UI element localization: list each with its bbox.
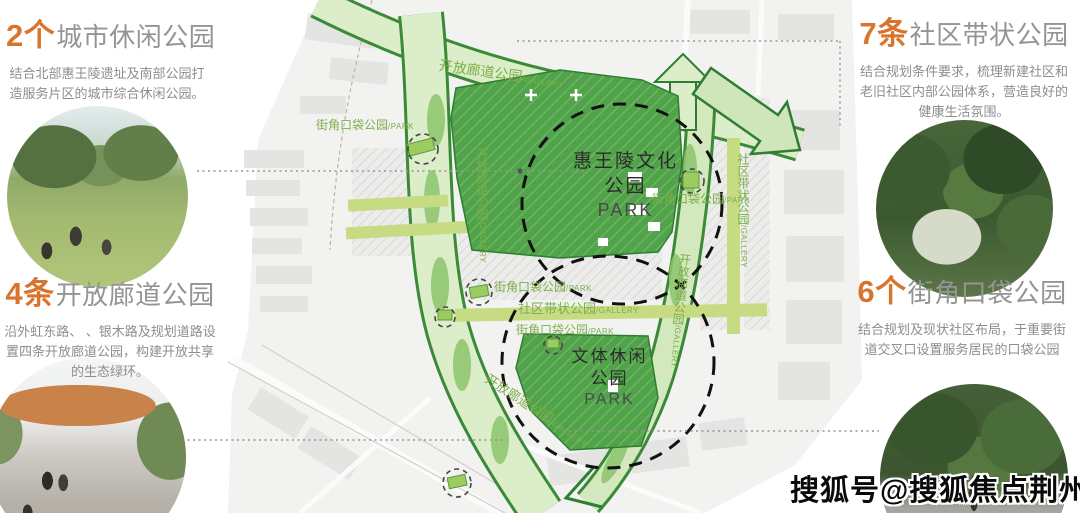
- panel-heading: 2个城市休闲公园: [6, 10, 208, 55]
- park-name-line: 惠王陵文化: [553, 150, 698, 175]
- panel-description: 结合规划及现状社区布局，于重要街道交叉口设置服务居民的口袋公园: [854, 320, 1070, 360]
- park-type-title: 街角口袋公园: [908, 278, 1067, 308]
- park-name-line: 公园: [547, 368, 672, 390]
- huiwangling-park-label: 惠王陵文化 公园 PARK: [553, 150, 698, 223]
- photo-city-leisure-park: [7, 106, 188, 287]
- label-text: 街角口袋公园: [516, 323, 588, 337]
- panel-city-leisure-parks: 2个城市休闲公园 结合北部惠王陵遗址及南部公园打造服务片区的城市综合休闲公园。: [6, 10, 208, 104]
- label-corridor-left: 开放廊道公园/GALLERY: [476, 148, 488, 263]
- park-name-en: PARK: [553, 199, 698, 222]
- park-count: 2个: [6, 18, 55, 53]
- label-text: 街角口袋公园: [316, 118, 388, 132]
- panel-heading: 7条社区带状公园: [858, 8, 1070, 53]
- label-text: 社区带状公园: [736, 153, 750, 225]
- label-text: 开放廊道公园: [475, 148, 489, 220]
- sohu-watermark: 搜狐号@搜狐焦点荆州站: [790, 467, 1080, 509]
- panel-description: 结合规划条件要求，梳理新建社区和老旧社区内部公园体系，营造良好的健康生活氛围。: [858, 62, 1070, 122]
- panel-description: 结合北部惠王陵遗址及南部公园打造服务片区的城市综合休闲公园。: [6, 64, 208, 104]
- panel-heading: 6个街角口袋公园: [854, 266, 1070, 311]
- label-suffix: /PARK: [724, 196, 750, 205]
- panel-open-corridor-parks: 4条开放廊道公园 沿外虹东路、 、银木路及规划道路设置四条开放廊道公园，构建开放…: [2, 268, 218, 382]
- panel-pocket-parks: 6个街角口袋公园 结合规划及现状社区布局，于重要街道交叉口设置服务居民的口袋公园: [854, 266, 1070, 360]
- park-count: 4条: [5, 276, 54, 311]
- park-type-title: 城市休闲公园: [56, 22, 215, 52]
- label-text: 社区带状公园: [518, 301, 596, 316]
- label-pocket-park-mid-upper: 街角口袋公园/PARK: [494, 281, 592, 293]
- label-pocket-park-nw: 街角口袋公园/PARK: [316, 119, 414, 131]
- panel-heading: 4条开放廊道公园: [2, 268, 218, 313]
- label-community-belt-horizontal: 社区带状公园/GALLERY: [518, 302, 639, 315]
- park-type-title: 社区带状公园: [910, 20, 1069, 50]
- wenti-park-label: 文体休闲 公园 PARK: [547, 346, 672, 411]
- label-suffix: /PARK: [388, 122, 414, 131]
- panel-description: 沿外虹东路、 、银木路及规划道路设置四条开放廊道公园，构建开放共享的生态绿环。: [2, 322, 218, 382]
- label-text: 街角口袋公园: [494, 280, 566, 294]
- label-pocket-park-mid-lower: 街角口袋公园/PARK: [516, 324, 614, 336]
- label-community-belt-vertical: 社区带状公园/GALLERY: [737, 153, 749, 268]
- panel-community-belt-parks: 7条社区带状公园 结合规划条件要求，梳理新建社区和老旧社区内部公园体系，营造良好…: [858, 8, 1070, 122]
- park-type-title: 开放廊道公园: [56, 280, 215, 310]
- connector-node: [517, 168, 522, 173]
- park-name-line: 公园: [553, 175, 698, 200]
- planning-infographic: 2个城市休闲公园 结合北部惠王陵遗址及南部公园打造服务片区的城市综合休闲公园。 …: [0, 0, 1080, 513]
- park-count: 7条: [859, 16, 908, 51]
- park-name-line: 文体休闲: [547, 346, 672, 368]
- label-suffix: /GALLERY: [596, 306, 639, 315]
- label-suffix: /PARK: [566, 284, 592, 293]
- park-count: 6个: [857, 274, 906, 309]
- park-name-en: PARK: [547, 390, 672, 411]
- label-suffix: /GALLERY: [739, 225, 748, 268]
- label-suffix: /GALLERY: [478, 220, 487, 263]
- label-suffix: /PARK: [588, 327, 614, 336]
